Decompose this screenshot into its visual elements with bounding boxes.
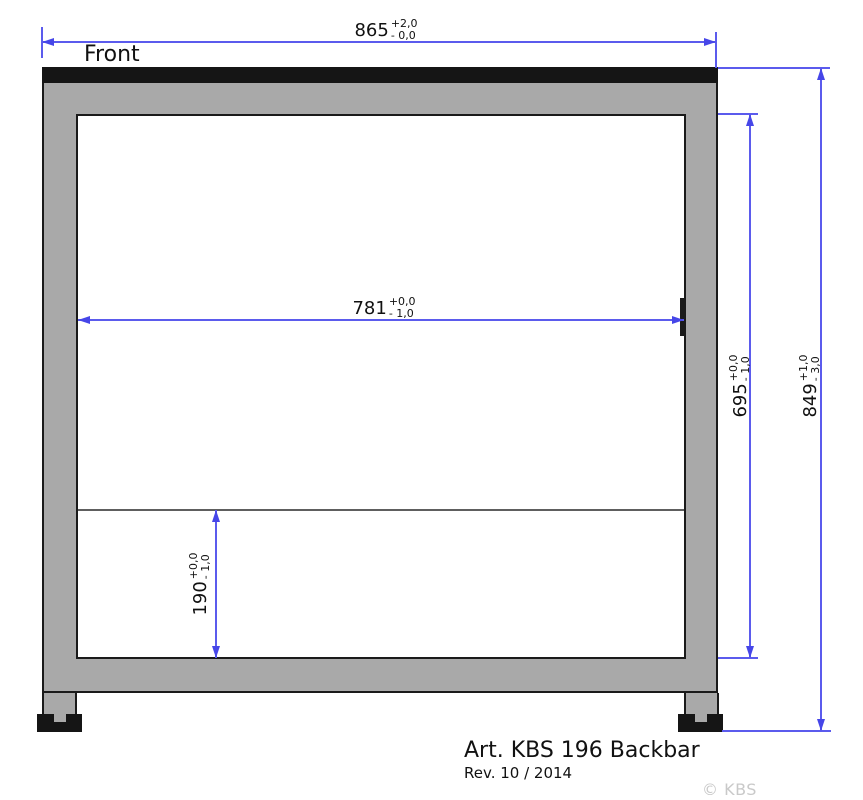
right-leg <box>684 693 719 716</box>
copyright-watermark: © KBS Gastrotechnik <box>702 780 863 800</box>
dimension-line-overall-width <box>42 41 716 43</box>
dimension-value: 190 <box>192 581 210 615</box>
arrowhead-down-icon <box>212 646 220 658</box>
shelf-divider-line <box>78 509 684 511</box>
arrowhead-down-icon <box>746 646 754 658</box>
tolerance-lower: - 1,0 <box>740 354 752 381</box>
arrowhead-left-icon <box>42 38 54 46</box>
dimension-value: 781 <box>352 300 386 318</box>
arrowhead-down-icon <box>817 719 825 731</box>
countertop-bar <box>42 67 718 83</box>
tolerance-lower: - 1,0 <box>200 552 212 579</box>
dimension-value: 865 <box>354 22 388 40</box>
dimension-value: 695 <box>732 383 750 417</box>
dimension-overall-height: 849 +1,0 - 3,0 <box>792 311 820 461</box>
dimension-tolerance: +0,0 - 1,0 <box>188 552 212 579</box>
tolerance-lower: - 3,0 <box>810 354 822 381</box>
front-label: Front <box>84 42 140 67</box>
right-foot-stem <box>695 714 707 722</box>
article-title: Art. KBS 196 Backbar <box>464 738 700 763</box>
dimension-line-inner-width <box>78 319 684 321</box>
dimension-tolerance: +2,0 - 0,0 <box>391 18 418 42</box>
dimension-inner-width: 781 +0,0 - 1,0 <box>309 290 459 318</box>
tolerance-lower: - 0,0 <box>391 30 418 42</box>
dimension-tolerance: +0,0 - 1,0 <box>728 354 752 381</box>
tolerance-lower: - 1,0 <box>389 308 416 320</box>
left-foot-stem <box>54 714 66 722</box>
dimension-inner-height: 695 +0,0 - 1,0 <box>722 311 750 461</box>
dimension-overall-width: 865 +2,0 - 0,0 <box>311 12 461 40</box>
arrowhead-up-icon <box>212 510 220 522</box>
arrowhead-up-icon <box>817 68 825 80</box>
left-leg <box>42 693 77 716</box>
extension-line <box>718 67 830 69</box>
extension-line <box>722 730 831 732</box>
dimension-line-base-height <box>215 510 217 658</box>
dimension-tolerance: +1,0 - 3,0 <box>798 354 822 381</box>
dimension-tolerance: +0,0 - 1,0 <box>389 296 416 320</box>
cabinet-opening <box>76 114 686 659</box>
arrowhead-left-icon <box>78 316 90 324</box>
revision-label: Rev. 10 / 2014 <box>464 764 572 782</box>
dimension-base-height: 190 +0,0 - 1,0 <box>182 509 210 659</box>
technical-drawing-canvas: 865 +2,0 - 0,0 781 +0,0 - 1,0 695 +0,0 -… <box>0 0 863 800</box>
arrowhead-right-icon <box>672 316 684 324</box>
arrowhead-right-icon <box>704 38 716 46</box>
arrowhead-up-icon <box>746 114 754 126</box>
dimension-value: 849 <box>802 383 820 417</box>
